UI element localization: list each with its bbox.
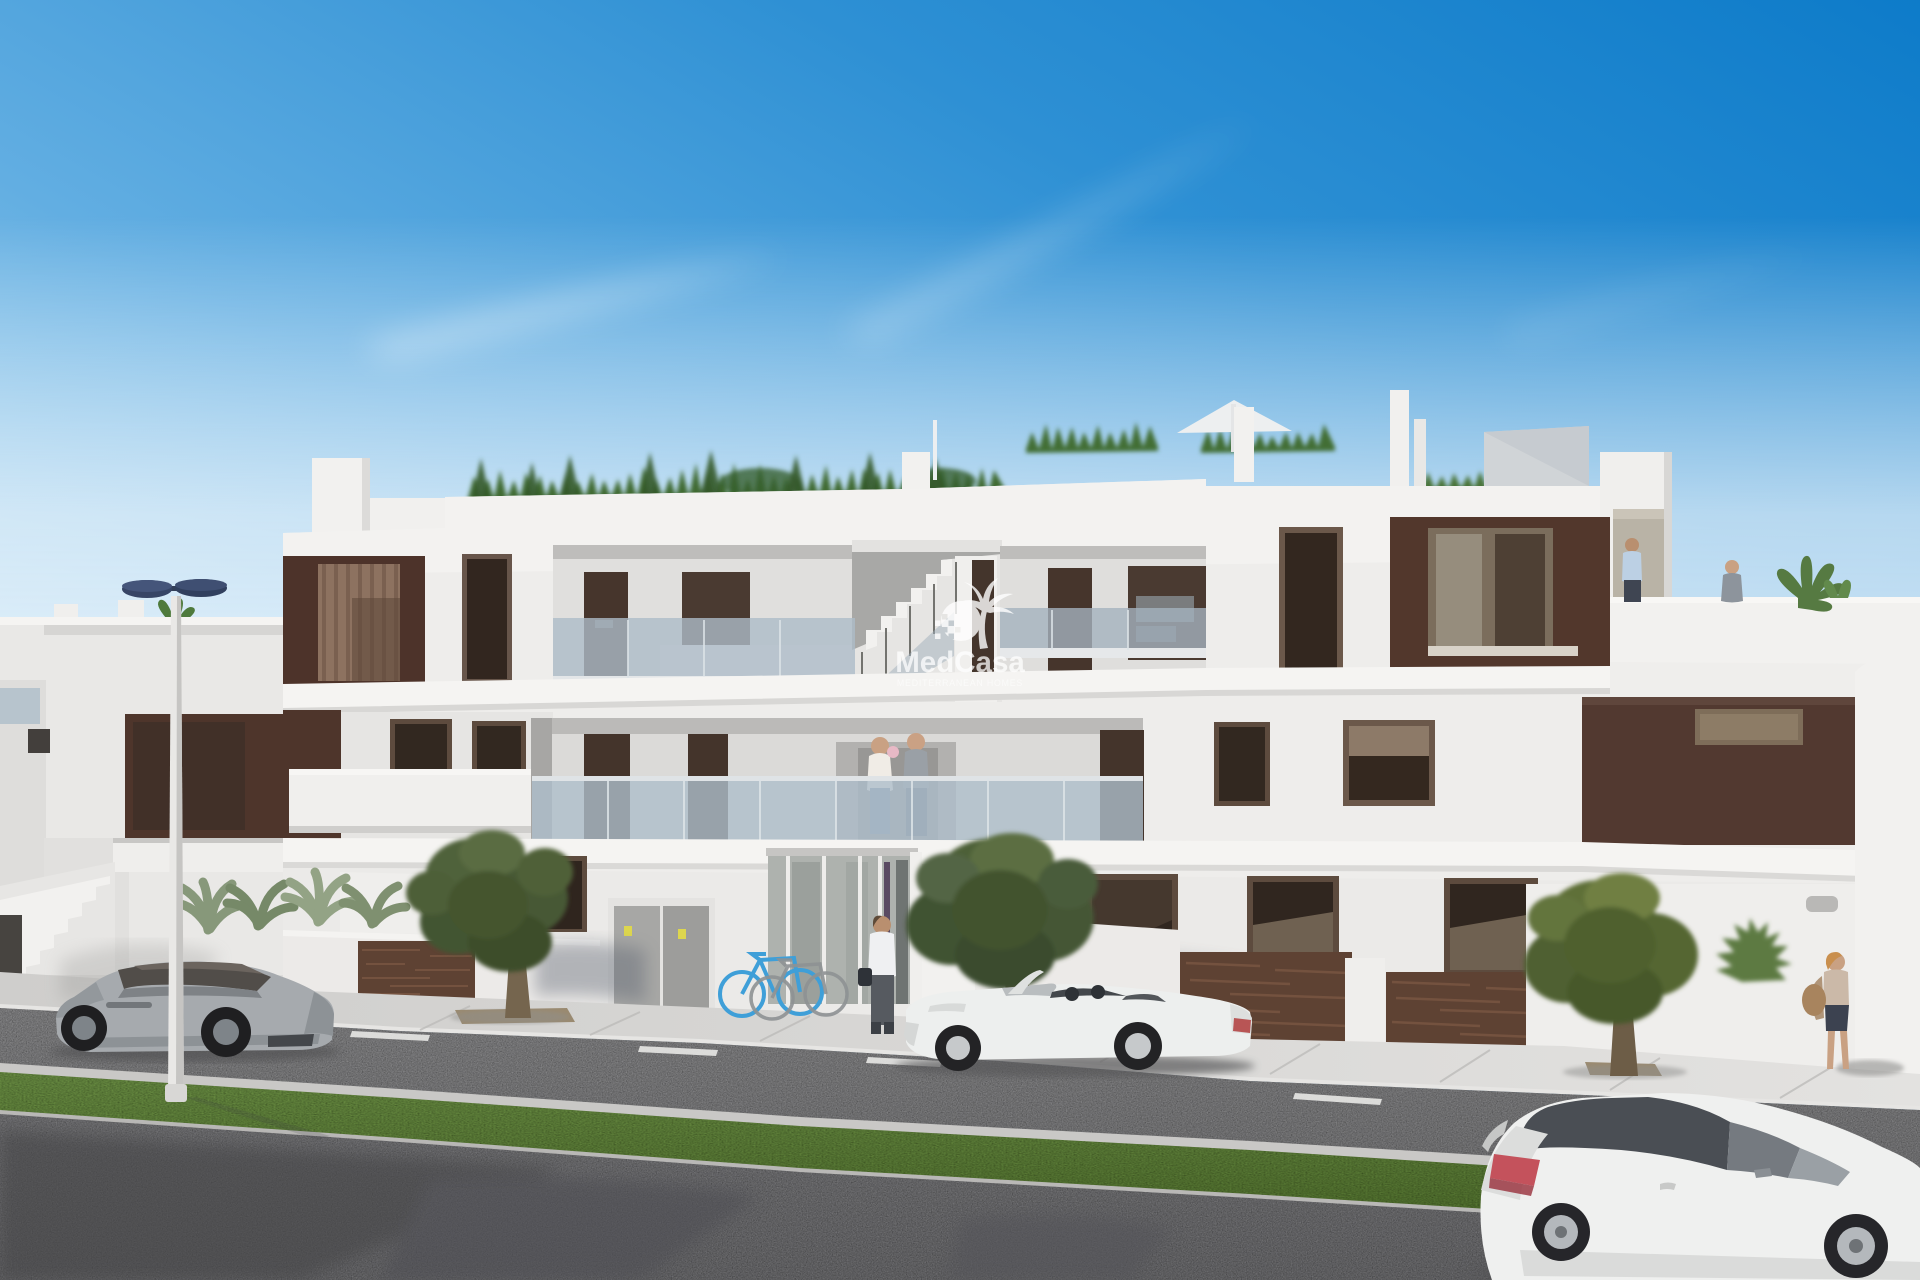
svg-text:MedCasa: MedCasa bbox=[895, 646, 1025, 679]
svg-text:MEDITERRANEAN HOMES: MEDITERRANEAN HOMES bbox=[897, 678, 1023, 688]
